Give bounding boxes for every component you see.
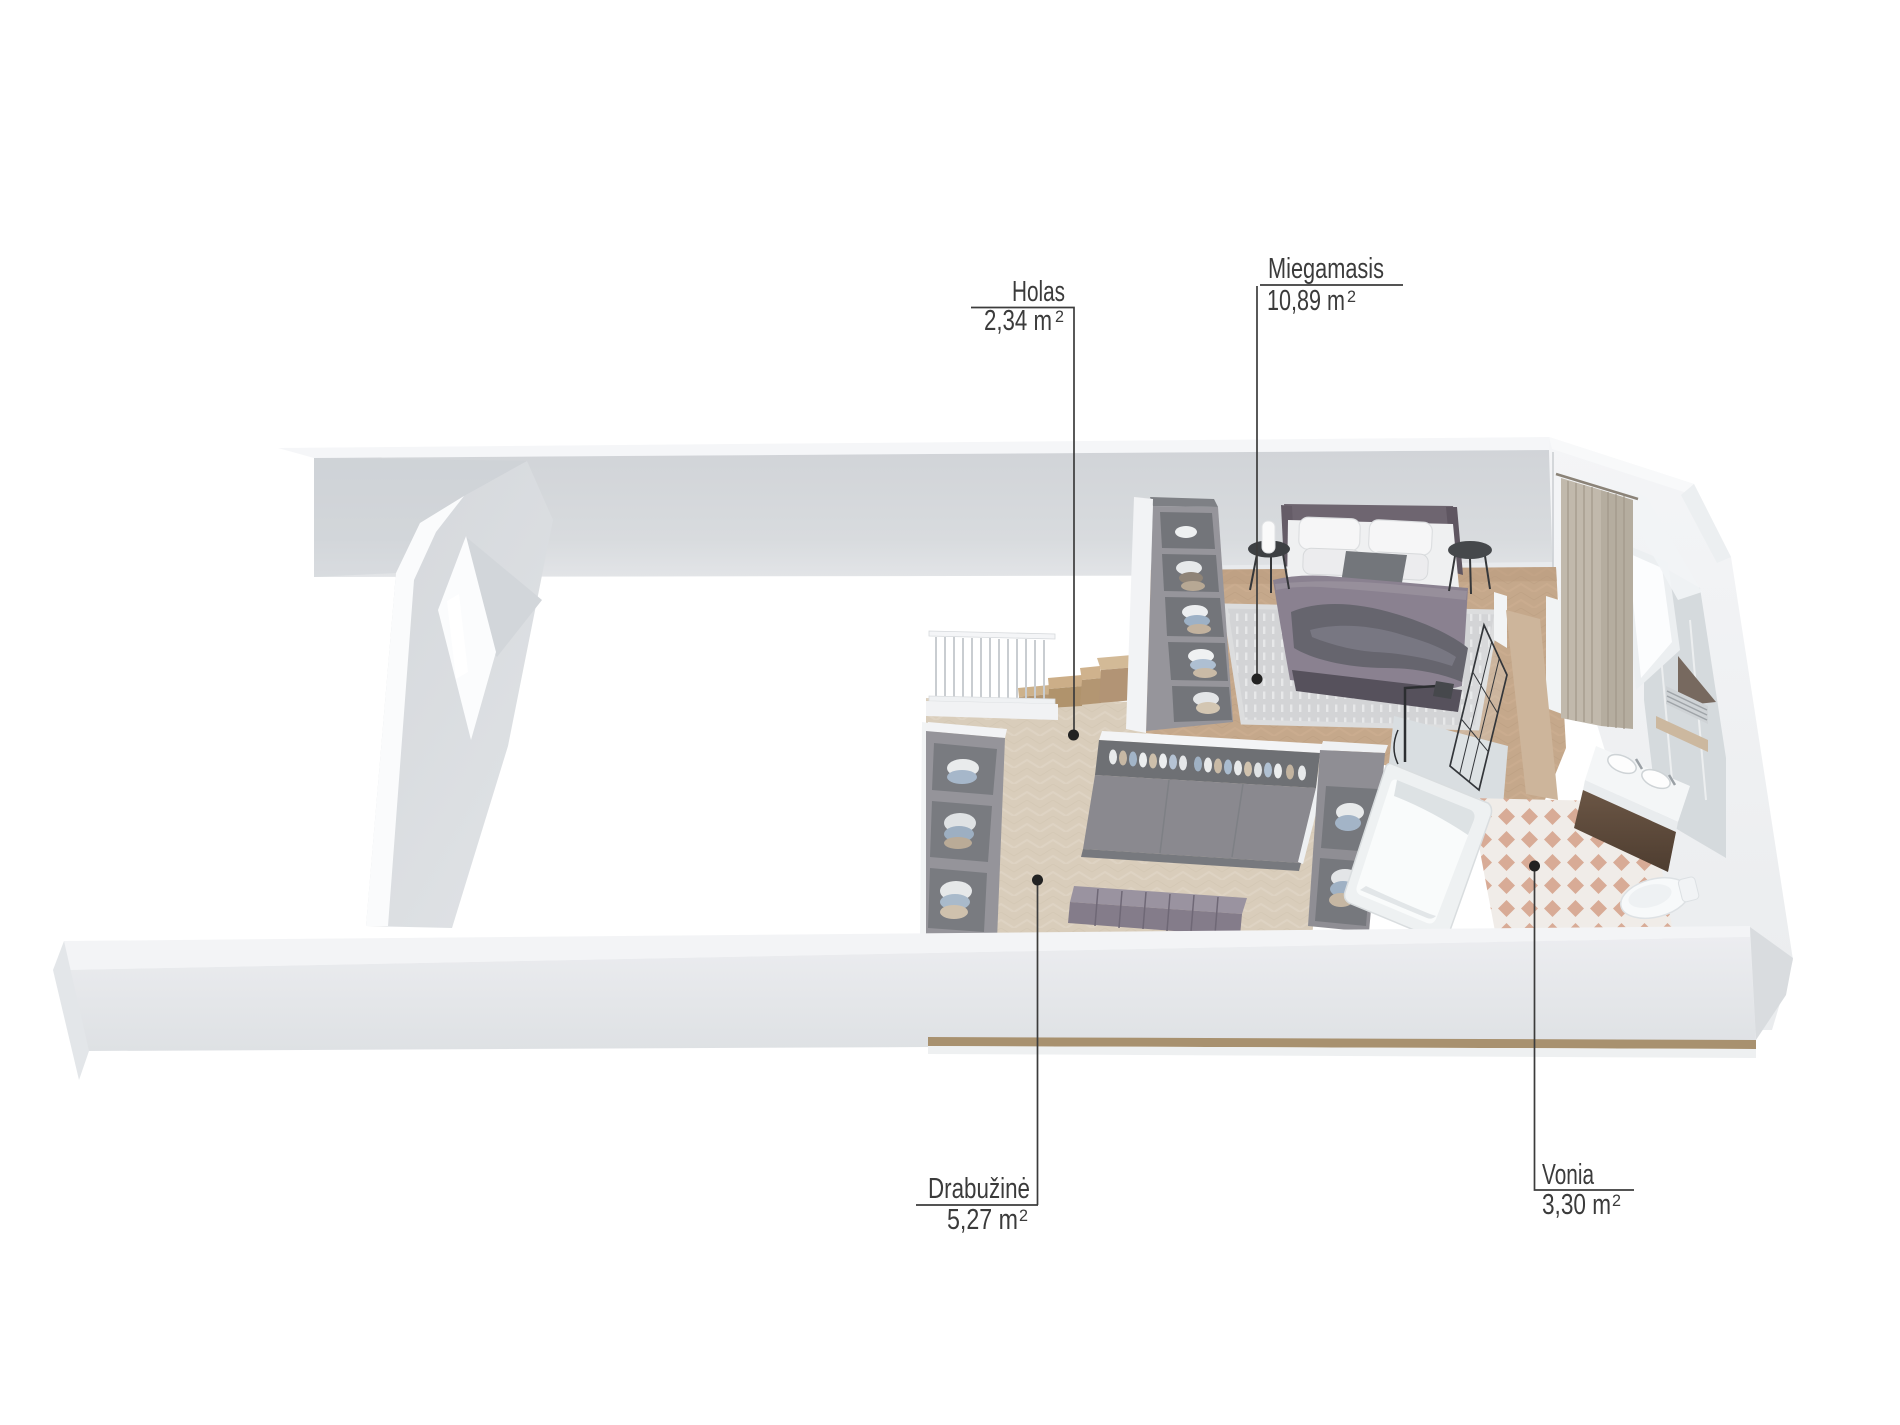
svg-text:5,27 m: 5,27 m — [947, 1204, 1018, 1236]
svg-text:2: 2 — [1055, 307, 1064, 326]
svg-text:Holas: Holas — [1012, 276, 1065, 308]
svg-text:10,89 m: 10,89 m — [1267, 285, 1345, 317]
svg-text:3,30 m: 3,30 m — [1542, 1189, 1611, 1221]
svg-text:2: 2 — [1347, 287, 1356, 306]
svg-text:2: 2 — [1612, 1191, 1621, 1210]
svg-text:Drabužinė: Drabužinė — [928, 1173, 1030, 1205]
svg-text:Miegamasis: Miegamasis — [1268, 253, 1384, 285]
svg-text:2,34 m: 2,34 m — [984, 305, 1052, 337]
svg-text:Vonia: Vonia — [1542, 1159, 1595, 1191]
svg-text:2: 2 — [1019, 1206, 1028, 1225]
